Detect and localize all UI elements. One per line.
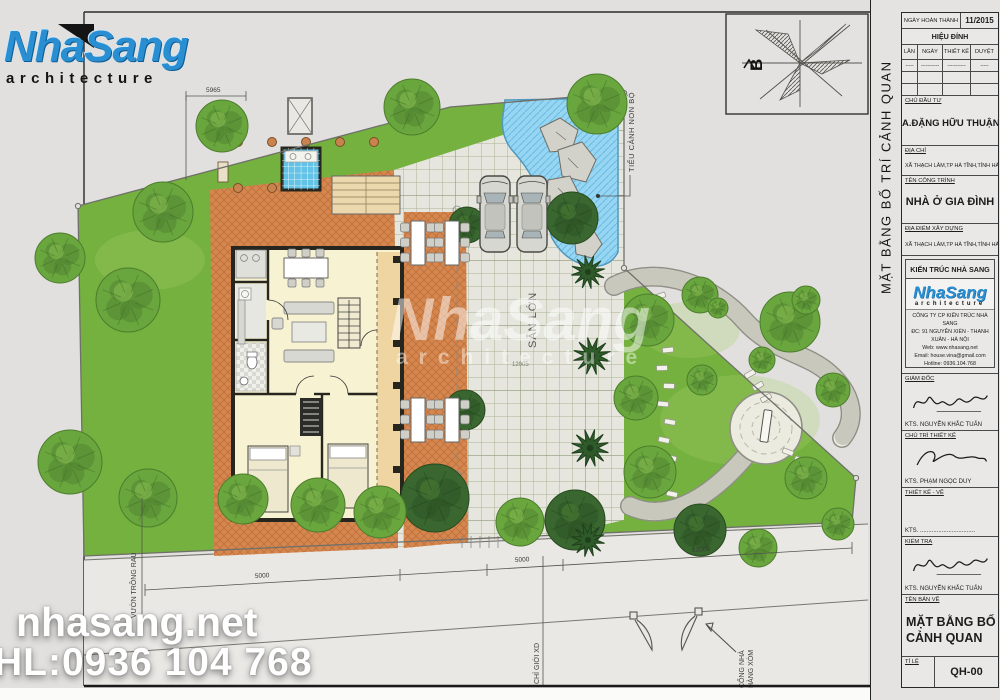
firm-logo-name: NhaSang	[906, 283, 994, 303]
dim-10060: 10060	[692, 546, 711, 554]
project-name: NHÀ Ở GIA ĐÌNH	[902, 196, 998, 208]
location-section: ĐỊA ĐIỂM XÂY DỰNG XÃ THẠCH LÂM,TP HÀ TĨN…	[902, 224, 998, 256]
tree	[96, 268, 160, 332]
scale-label: TỈ LỆ	[905, 659, 919, 665]
address-label: ĐỊA CHỈ	[905, 148, 926, 154]
svg-text:architecture: architecture	[396, 346, 648, 369]
tree	[354, 486, 406, 538]
firm-header: KIẾN TRÚC NHÀ SANG	[906, 260, 994, 279]
project-label: TÊN CÔNG TRÌNH	[905, 178, 955, 184]
client-name: A.ĐẶNG HỮU THUẬN	[902, 118, 998, 129]
stepping-stone	[662, 347, 673, 353]
firm-logo: NhaSang architecture	[906, 279, 994, 310]
stairs	[338, 298, 360, 348]
tree	[624, 446, 676, 498]
drafter-label: THIẾT KẾ - VẼ	[905, 490, 944, 496]
rev-dash: -----------	[942, 60, 970, 71]
dim-5000b: 5000	[515, 556, 530, 564]
watermark-phone: HL:0936 104 768	[0, 643, 313, 682]
director-section: GIÁM ĐỐC KTS. NGUYỄN KHẮC TUẤN	[902, 374, 998, 431]
drawing-title-1: MẶT BẰNG BỐ TRÍ	[906, 615, 998, 631]
logo-name: NhaSang	[4, 22, 188, 72]
wardrobe	[300, 398, 322, 436]
location-value: XÃ THẠCH LÂM,TP HÀ TĨNH,TỈNH HÀ TĨNH	[905, 242, 998, 248]
checker-section: KIỂM TRA KTS. NGUYỄN KHẮC TUẤN	[902, 537, 998, 595]
corner-watermark: nhasang.net HL:0936 104 768	[0, 602, 313, 682]
date-label: NGÀY HOÀN THÀNH	[902, 13, 960, 28]
director-signature	[910, 384, 990, 416]
center-watermark: NhaSang architecture	[390, 286, 650, 369]
title-block: MẶT BẰNG BỐ TRÍ CẢNH QUAN NGÀY HOÀN THÀN…	[870, 0, 1000, 700]
firm-line: Hotline: 0936.104.768	[906, 361, 994, 369]
lead-designer-signature	[910, 441, 990, 473]
drafter-name: KTS. .................................	[905, 528, 975, 534]
tree	[687, 365, 717, 395]
side-title: MẶT BẰNG BỐ TRÍ CẢNH QUAN	[871, 14, 901, 294]
tree	[739, 529, 777, 567]
lead-designer-name: KTS. PHẠM NGỌC DUY	[905, 479, 971, 485]
table-with-chairs	[435, 221, 470, 265]
tree	[401, 464, 469, 532]
drawing-title-section: TÊN BẢN VẼ MẶT BẰNG BỐ TRÍ CẢNH QUAN	[902, 595, 998, 657]
rev-col: NGÀY	[917, 45, 942, 59]
tree	[614, 376, 658, 420]
project-section: TÊN CÔNG TRÌNH NHÀ Ở GIA ĐÌNH	[902, 176, 998, 224]
logo-sub: architecture	[6, 70, 158, 87]
tree	[785, 457, 827, 499]
dining-set	[284, 249, 328, 287]
svg-text:NhaSang: NhaSang	[390, 286, 650, 353]
date-value: 11/2015	[960, 13, 998, 28]
rev-col: THIẾT KẾ	[942, 45, 970, 59]
label-chi-gioi: CHỈ GIỚI XD	[532, 643, 541, 684]
rev-col: LẦN	[902, 45, 917, 59]
stepping-stone	[663, 383, 674, 388]
nhasang-logo: NhaSang architecture	[2, 20, 202, 92]
table-with-chairs	[401, 221, 436, 265]
drafter-section: THIẾT KẾ - VẼ KTS. .....................…	[902, 488, 998, 537]
rev-dash: -----------	[917, 60, 942, 71]
tree	[792, 286, 820, 314]
checker-signature	[910, 547, 990, 579]
tree	[196, 100, 248, 152]
rev-col: DUYỆT	[970, 45, 998, 59]
car	[514, 176, 550, 252]
address-value: XÃ THẠCH LÂM,TP HÀ TĨNH,TỈNH HÀ TĨNH	[905, 163, 998, 169]
page-bottom-strip	[0, 688, 870, 700]
tree	[708, 298, 728, 318]
firm-line: CÔNG TY CP KIẾN TRÚC NHÀ SANG	[906, 313, 994, 329]
tree	[119, 469, 177, 527]
tree	[822, 508, 854, 540]
checker-label: KIỂM TRA	[905, 539, 932, 545]
entrance-steps	[332, 176, 400, 214]
dim-5965: 5965	[206, 87, 221, 94]
stepping-stone	[656, 365, 667, 370]
revision-empty-row	[902, 72, 998, 84]
address-section: ĐỊA CHỈ XÃ THẠCH LÂM,TP HÀ TĨNH,TỈNH HÀ …	[902, 146, 998, 176]
client-label: CHỦ ĐẦU TƯ	[905, 98, 941, 104]
lead-designer-label: CHỦ TRÌ THIẾT KẾ	[905, 433, 956, 439]
rev-dash: -----	[902, 60, 917, 71]
checker-name: KTS. NGUYỄN KHẮC TUẤN	[905, 586, 982, 592]
north-arrow: B	[726, 14, 868, 114]
tree	[133, 182, 193, 242]
director-name: KTS. NGUYỄN KHẮC TUẤN	[905, 422, 982, 428]
rev-dash: -----	[970, 60, 998, 71]
firm-line: Web: www.nhasang.net	[906, 345, 994, 353]
scale-row: TỈ LỆ QH-00	[902, 657, 998, 687]
client-section: CHỦ ĐẦU TƯ A.ĐẶNG HỮU THUẬN	[902, 96, 998, 146]
revision-dashes: ----- ----------- ----------- -----	[902, 60, 998, 72]
tree	[816, 373, 850, 407]
firm-line: Email: house.vina@gmail.com	[906, 353, 994, 361]
patio-bench	[218, 162, 228, 182]
director-label: GIÁM ĐỐC	[905, 376, 934, 382]
label-cong-nha-1: CỔNG NHÀ	[737, 650, 746, 688]
car	[477, 176, 513, 252]
drawing-title-2: CẢNH QUAN	[906, 631, 998, 647]
site-plan-sheet: B TIỂU CẢNH NON BỘ SÂN LỚN VƯỜN TRỒNG RA…	[0, 0, 1000, 700]
firm-line: ĐC: 91 NGUYỄN XIỂN - THANH XUÂN - HÀ NỘI	[906, 329, 994, 345]
tree	[218, 474, 268, 524]
well-structure	[288, 98, 312, 134]
label-tieu-canh: TIỂU CẢNH NON BỘ	[627, 92, 636, 172]
drawing-number: QH-00	[934, 657, 998, 687]
table-with-chairs	[435, 398, 470, 442]
revision-columns: LẦN NGÀY THIẾT KẾ DUYỆT	[902, 45, 998, 60]
wc-block	[282, 148, 320, 190]
plan-drawing: B TIỂU CẢNH NON BỘ SÂN LỚN VƯỜN TRỒNG RA…	[0, 0, 1000, 700]
date-row: NGÀY HOÀN THÀNH 11/2015	[902, 13, 998, 29]
tree	[384, 79, 440, 135]
location-label: ĐỊA ĐIỂM XÂY DỰNG	[905, 226, 963, 232]
tree	[38, 430, 102, 494]
revision-header: HIỆU ĐÍNH	[902, 29, 998, 45]
firm-section: KIẾN TRÚC NHÀ SANG NhaSang architecture …	[902, 256, 998, 374]
drawing-title-label: TÊN BẢN VẼ	[905, 597, 939, 603]
revision-empty-row	[902, 84, 998, 96]
tree	[546, 192, 598, 244]
label-cong-nha-2: HÀNG XÓM	[746, 650, 755, 688]
tree	[35, 233, 85, 283]
table-with-chairs	[401, 398, 436, 442]
tree	[496, 498, 544, 546]
tree	[749, 347, 775, 373]
tree	[291, 478, 345, 532]
watermark-site: nhasang.net	[16, 602, 313, 643]
dim-5000a: 5000	[255, 572, 270, 580]
lead-designer-section: CHỦ TRÌ THIẾT KẾ KTS. PHẠM NGỌC DUY	[902, 431, 998, 488]
firm-logo-sub: architecture	[906, 301, 994, 307]
tree	[567, 74, 627, 134]
stepping-stone	[657, 401, 668, 407]
